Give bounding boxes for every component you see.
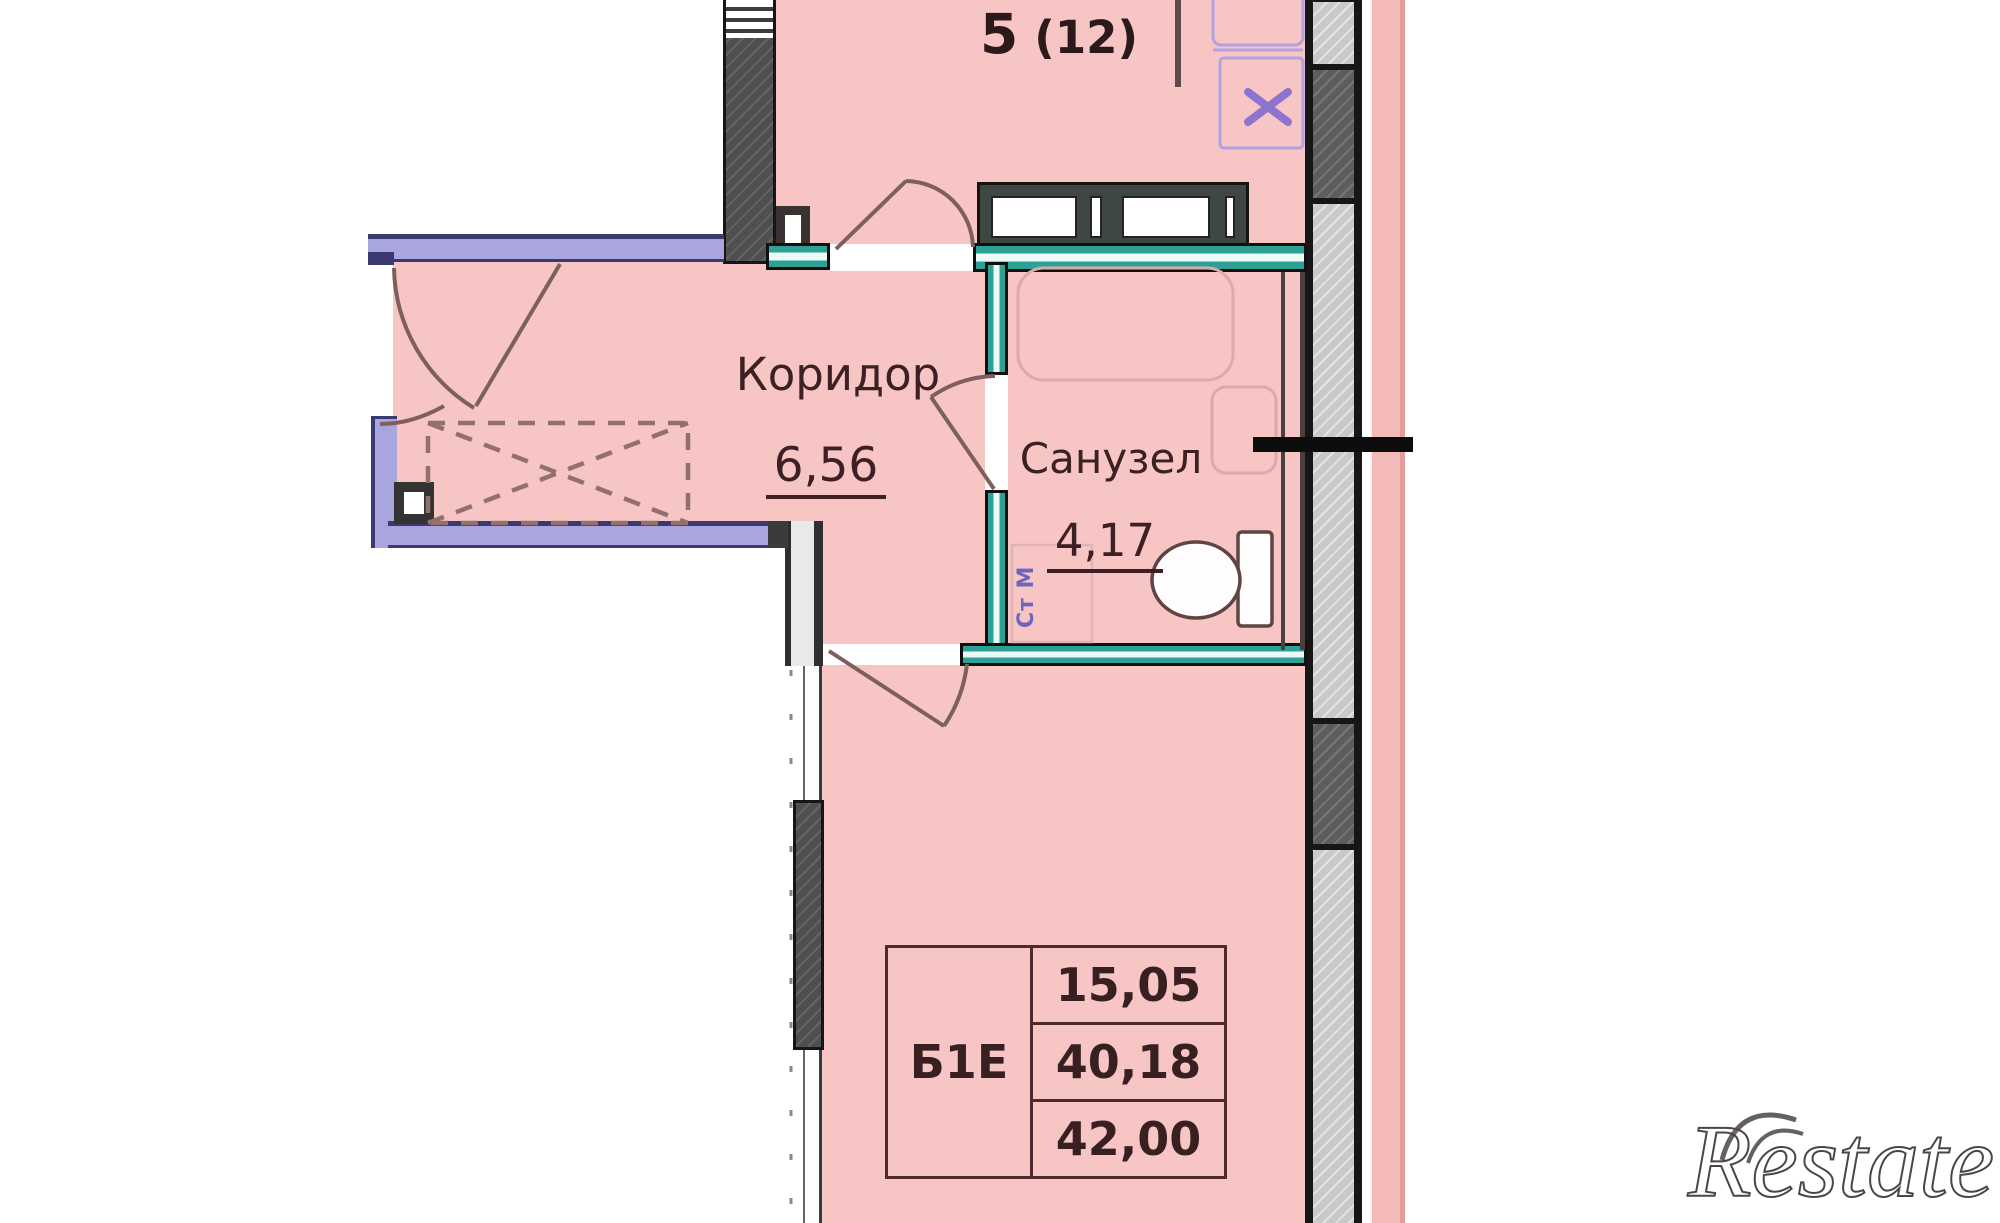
bathroom-area-value: 4,17	[1047, 514, 1163, 573]
balcony-door-swing-icon	[380, 264, 560, 424]
corridor-area-value: 6,56	[766, 438, 887, 499]
wardrobe-dashed-icon	[428, 423, 688, 523]
corridor-area: 6,56	[756, 438, 896, 493]
floor-plan: 5 (12) Коридор 6,56 Санузел 4,17 Ст М Б1…	[0, 0, 2000, 1223]
bathtub-icon	[1018, 268, 1233, 380]
apartment-number: 5	[980, 2, 1018, 66]
apartment-number-alt: (12)	[1034, 11, 1138, 64]
bathroom-label: Санузел	[1005, 434, 1217, 483]
apartment-number-label: 5 (12)	[980, 2, 1138, 66]
bathroom-area: 4,17	[1040, 514, 1170, 567]
unit-label-cell: Б1Е	[888, 948, 1033, 1176]
washbasin-icon	[1212, 387, 1276, 473]
corridor-label: Коридор	[733, 348, 943, 401]
total-area-cell: 42,00	[1033, 1102, 1224, 1176]
kitchen-sink-icon	[1213, 0, 1303, 148]
apartment-area-cell: 40,18	[1033, 1025, 1224, 1102]
section-cut-line	[1253, 437, 1413, 452]
washing-machine-label: Ст М	[1014, 552, 1039, 628]
toilet-icon	[1152, 532, 1272, 626]
living-area-cell: 15,05	[1033, 948, 1224, 1025]
entry-door-swing-icon	[836, 181, 973, 249]
area-summary-table: Б1Е 15,05 40,18 42,00	[885, 945, 1227, 1179]
watermark: Restate	[1688, 1102, 1994, 1221]
main-room-door-swing-icon	[829, 651, 967, 726]
